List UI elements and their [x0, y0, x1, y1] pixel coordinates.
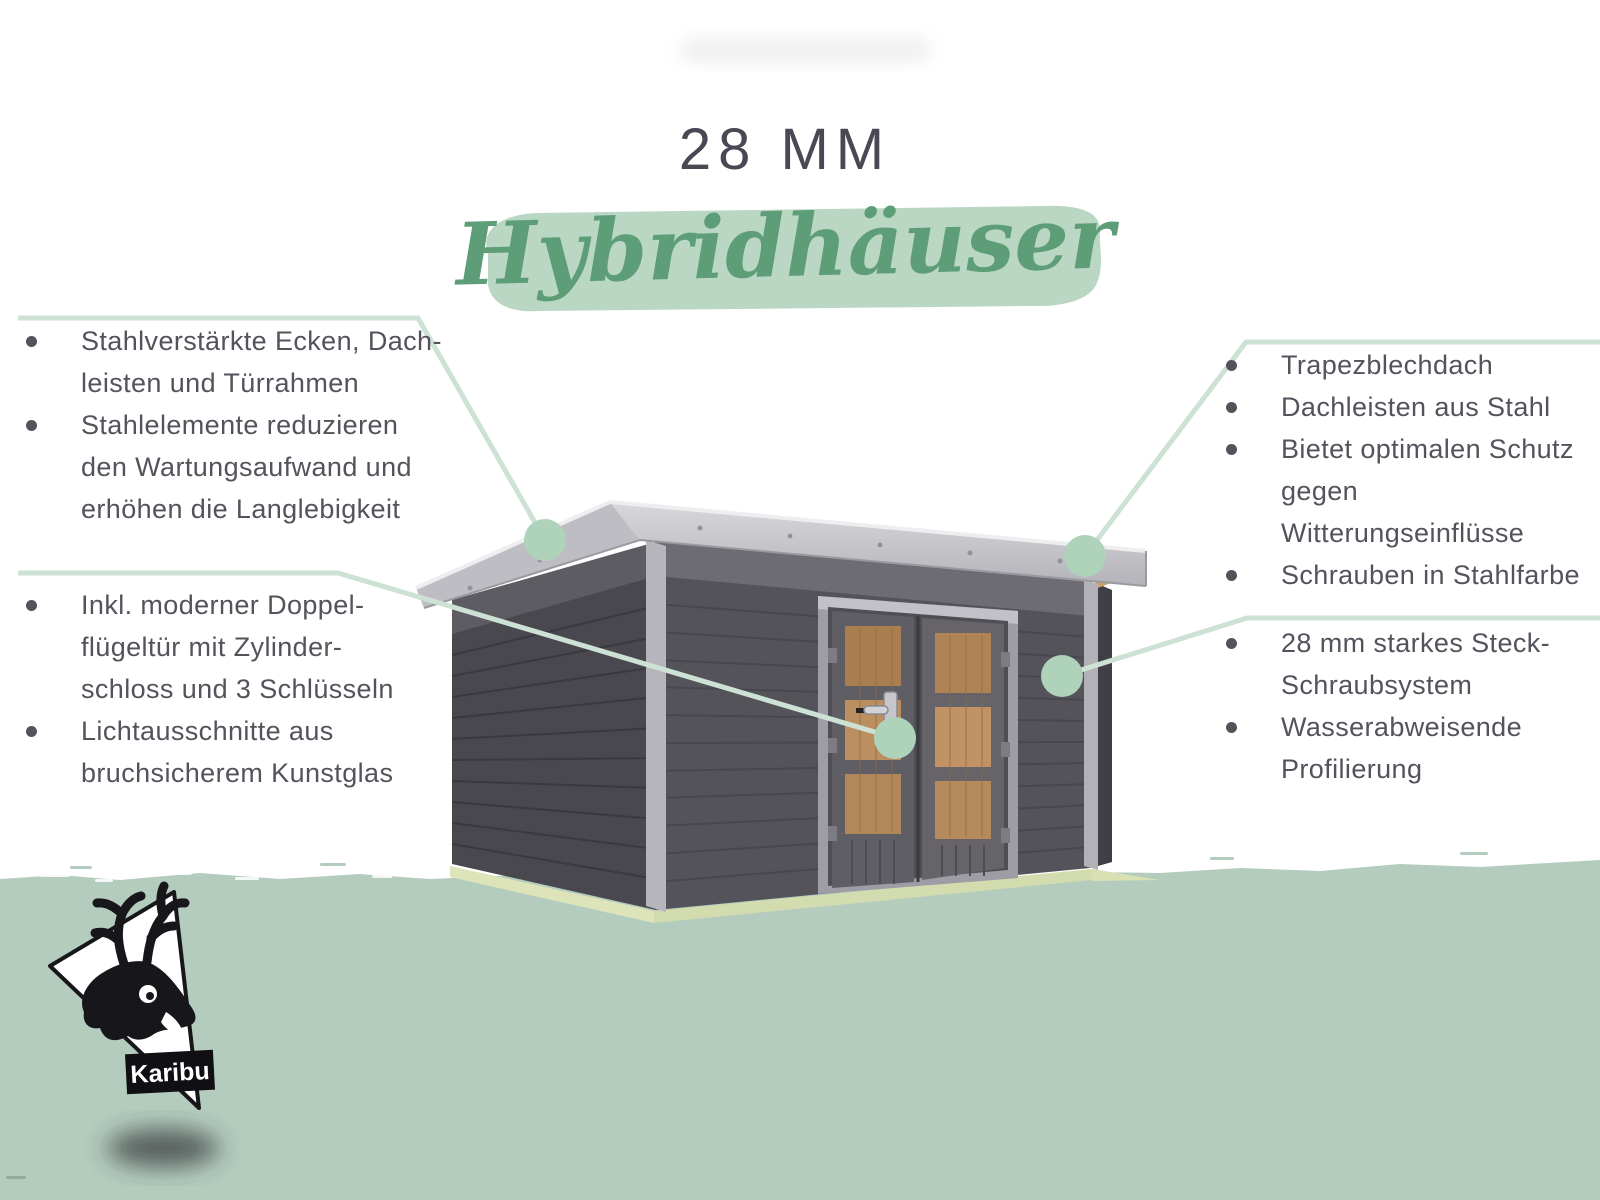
feature-list-left-top: Stahlverstärkte Ecken, Dach- leisten und… [18, 320, 458, 530]
feature-line: Trapezblechdach [1281, 344, 1493, 386]
marker-dot-roof-left [524, 519, 566, 561]
product-title: Hybridhäuser [399, 186, 1171, 307]
marker-dot-door-handle [874, 717, 916, 759]
feature-line: erhöhen die Langlebigkeit [81, 488, 412, 530]
feature-list-left-bottom: Inkl. moderner Doppel- flügeltür mit Zyl… [18, 584, 458, 794]
feature-line: flügeltür mit Zylinder- [81, 626, 394, 668]
feature-line: bruchsicherem Kunstglas [81, 752, 393, 794]
bullet-icon [1226, 402, 1237, 413]
feature-line: Stahlverstärkte Ecken, Dach- [81, 320, 442, 362]
bullet-icon [1226, 444, 1237, 455]
marker-dot-wall-right [1041, 655, 1083, 697]
feature-line: Dachleisten aus Stahl [1281, 386, 1551, 428]
bullet-icon [1226, 722, 1237, 733]
size-title: 28 MM [500, 116, 1070, 183]
list-item: Bietet optimalen Schutz gegen Witterungs… [1218, 428, 1600, 554]
feature-line: Bietet optimalen Schutz [1281, 428, 1600, 470]
feature-line: schloss und 3 Schlüsseln [81, 668, 394, 710]
feature-line: Schraubsystem [1281, 664, 1550, 706]
bullet-icon [1226, 570, 1237, 581]
feature-line: Schrauben in Stahlfarbe [1281, 554, 1580, 596]
feature-line: gegen Witterungseinflüsse [1281, 470, 1600, 554]
logo-brand-text: Karibu [130, 1057, 211, 1089]
logo-shadow [107, 1129, 219, 1167]
bullet-icon [1226, 360, 1237, 371]
corner-trim-right [1084, 580, 1098, 870]
feature-line: Inkl. moderner Doppel- [81, 584, 394, 626]
feature-line: 28 mm starkes Steck- [1281, 622, 1550, 664]
right-wall-sliver [1098, 584, 1112, 866]
feature-line: leisten und Türrahmen [81, 362, 442, 404]
bullet-icon [26, 420, 37, 431]
feature-list-right-bottom: 28 mm starkes Steck- Schraubsystem Wasse… [1218, 622, 1600, 790]
bullet-icon [26, 726, 37, 737]
list-item: Dachleisten aus Stahl [1218, 386, 1600, 428]
feature-list-right-top: Trapezblechdach Dachleisten aus Stahl Bi… [1218, 344, 1600, 596]
list-item: Inkl. moderner Doppel- flügeltür mit Zyl… [18, 584, 458, 710]
bullet-icon [26, 600, 37, 611]
feature-line: Lichtausschnitte aus [81, 710, 393, 752]
shed [416, 502, 1160, 923]
list-item: 28 mm starkes Steck- Schraubsystem [1218, 622, 1600, 706]
feature-line: Profilierung [1281, 748, 1522, 790]
corner-trim-left [646, 540, 666, 912]
marker-dot-roof-right [1064, 535, 1106, 577]
list-item: Stahlelemente reduzieren den Wartungsauf… [18, 404, 458, 530]
feature-line: den Wartungsaufwand und [81, 446, 412, 488]
feature-line: Stahlelemente reduzieren [81, 404, 412, 446]
bullet-icon [1226, 638, 1237, 649]
infographic-page: Karibu 28 MM Hybridhäuser Stahlverstärkt… [0, 0, 1600, 1200]
list-item: Stahlverstärkte Ecken, Dach- leisten und… [18, 320, 458, 404]
list-item: Lichtausschnitte aus bruchsicherem Kunst… [18, 710, 458, 794]
bullet-icon [26, 336, 37, 347]
top-shadow-smudge [680, 38, 930, 62]
list-item: Schrauben in Stahlfarbe [1218, 554, 1600, 596]
feature-line: Wasserabweisende [1281, 706, 1522, 748]
list-item: Trapezblechdach [1218, 344, 1600, 386]
logo-wordmark: Karibu [125, 1050, 215, 1095]
list-item: Wasserabweisende Profilierung [1218, 706, 1600, 790]
ground [0, 860, 1600, 1200]
double-door [818, 596, 1018, 894]
